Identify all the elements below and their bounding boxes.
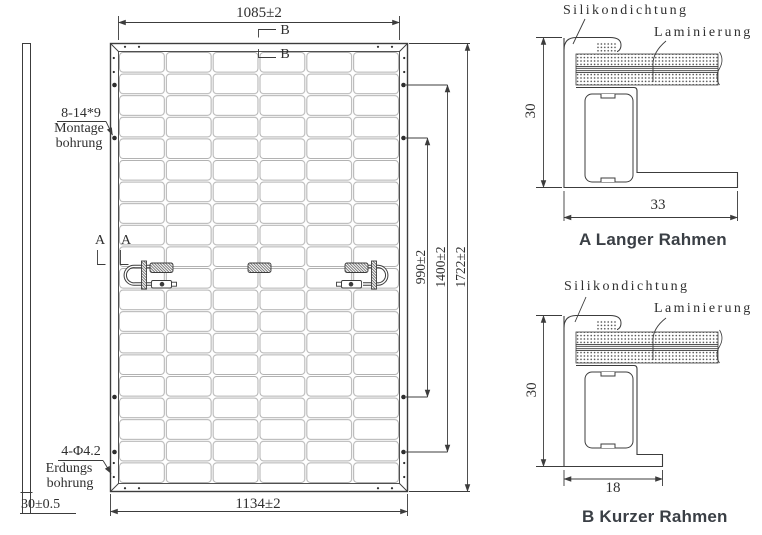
detail-a-width-dim: 33 <box>638 198 678 214</box>
mounting-hole-spec: 8-14*9 <box>51 107 111 122</box>
drawing-linework <box>0 0 762 535</box>
detail-b-seal-label: Silikondichtung <box>564 280 689 295</box>
section-mark-a-right: A <box>120 234 132 249</box>
section-mark-b-bottom: B <box>278 48 292 63</box>
dim-width-top: 1085±2 <box>215 6 303 22</box>
detail-b-caption: B Kurzer Rahmen <box>582 508 728 526</box>
detail-a-caption: A Langer Rahmen <box>579 231 727 249</box>
grounding-hole-label-1: Erdungs <box>39 462 99 477</box>
detail-b-height-dim: 30 <box>525 375 541 405</box>
detail-a-lamination-label: Laminierung <box>654 26 753 41</box>
section-mark-a-left: A <box>94 234 106 249</box>
mounting-hole-label-2: bohrung <box>49 137 109 152</box>
grounding-hole-label-2: bohrung <box>40 477 100 492</box>
grounding-hole-spec: 4-Φ4.2 <box>51 445 111 460</box>
mounting-hole-label-1: Montage <box>49 122 109 137</box>
dim-height-inner: 990±2 <box>414 237 428 297</box>
detail-b-lamination-label: Laminierung <box>654 302 753 317</box>
section-mark-b-top: B <box>278 24 292 39</box>
dim-height-outer: 1722±2 <box>454 237 468 297</box>
detail-a-seal-label: Silikondichtung <box>563 4 688 19</box>
dim-frame-thickness: 30±0.5 <box>21 498 60 513</box>
detail-a-height-dim: 30 <box>524 96 540 126</box>
dim-width-bottom: 1134±2 <box>214 497 302 513</box>
detail-b-width-dim: 18 <box>593 481 633 497</box>
solar-module-technical-drawing: 1085±2 1134±2 990±2 1400±2 1722±2 30±0.5… <box>0 0 762 535</box>
dim-height-mid: 1400±2 <box>434 237 448 297</box>
